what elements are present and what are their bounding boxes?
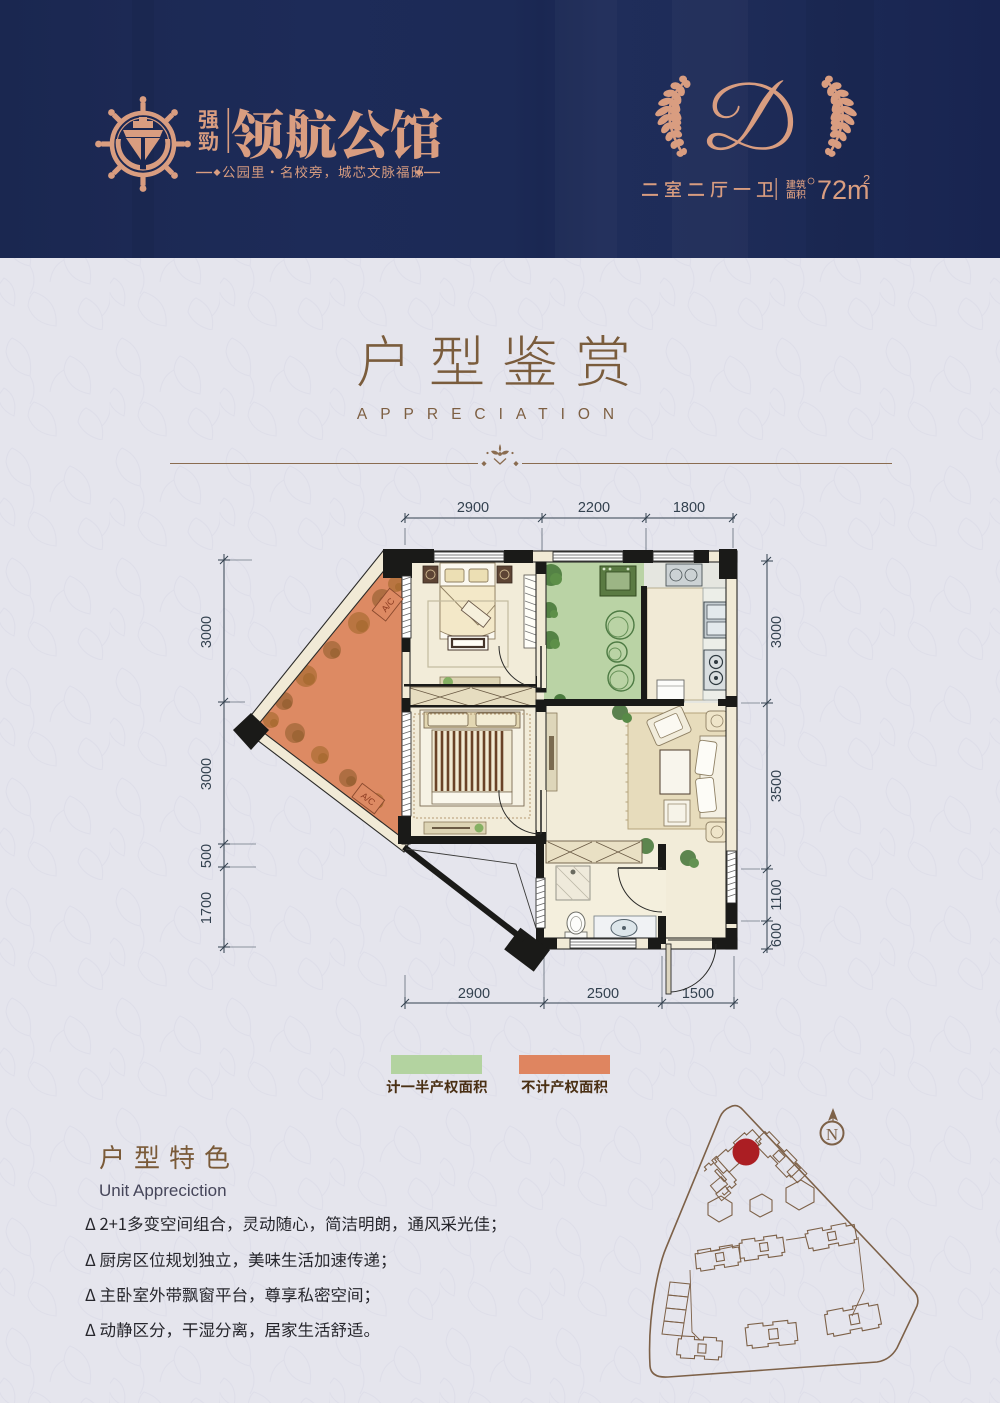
svg-text:3500: 3500 xyxy=(769,770,785,802)
svg-text:2200: 2200 xyxy=(578,500,610,516)
svg-text:500: 500 xyxy=(199,844,215,868)
svg-text:N: N xyxy=(826,1125,838,1144)
svg-text:2900: 2900 xyxy=(458,986,490,1002)
svg-text:1800: 1800 xyxy=(673,500,705,516)
svg-text:Unit Appreciction: Unit Appreciction xyxy=(99,1181,227,1200)
svg-text:APPRECIATION: APPRECIATION xyxy=(357,406,627,423)
svg-text:72m: 72m xyxy=(817,175,870,205)
svg-text:2900: 2900 xyxy=(457,500,489,516)
svg-text:3000: 3000 xyxy=(769,616,785,648)
svg-text:3000: 3000 xyxy=(199,758,215,790)
svg-text:1700: 1700 xyxy=(199,892,215,924)
svg-text:1100: 1100 xyxy=(769,879,785,910)
svg-text:600: 600 xyxy=(769,923,785,947)
svg-text:2: 2 xyxy=(863,172,870,187)
svg-text:3000: 3000 xyxy=(199,616,215,648)
svg-text:2500: 2500 xyxy=(587,986,619,1002)
